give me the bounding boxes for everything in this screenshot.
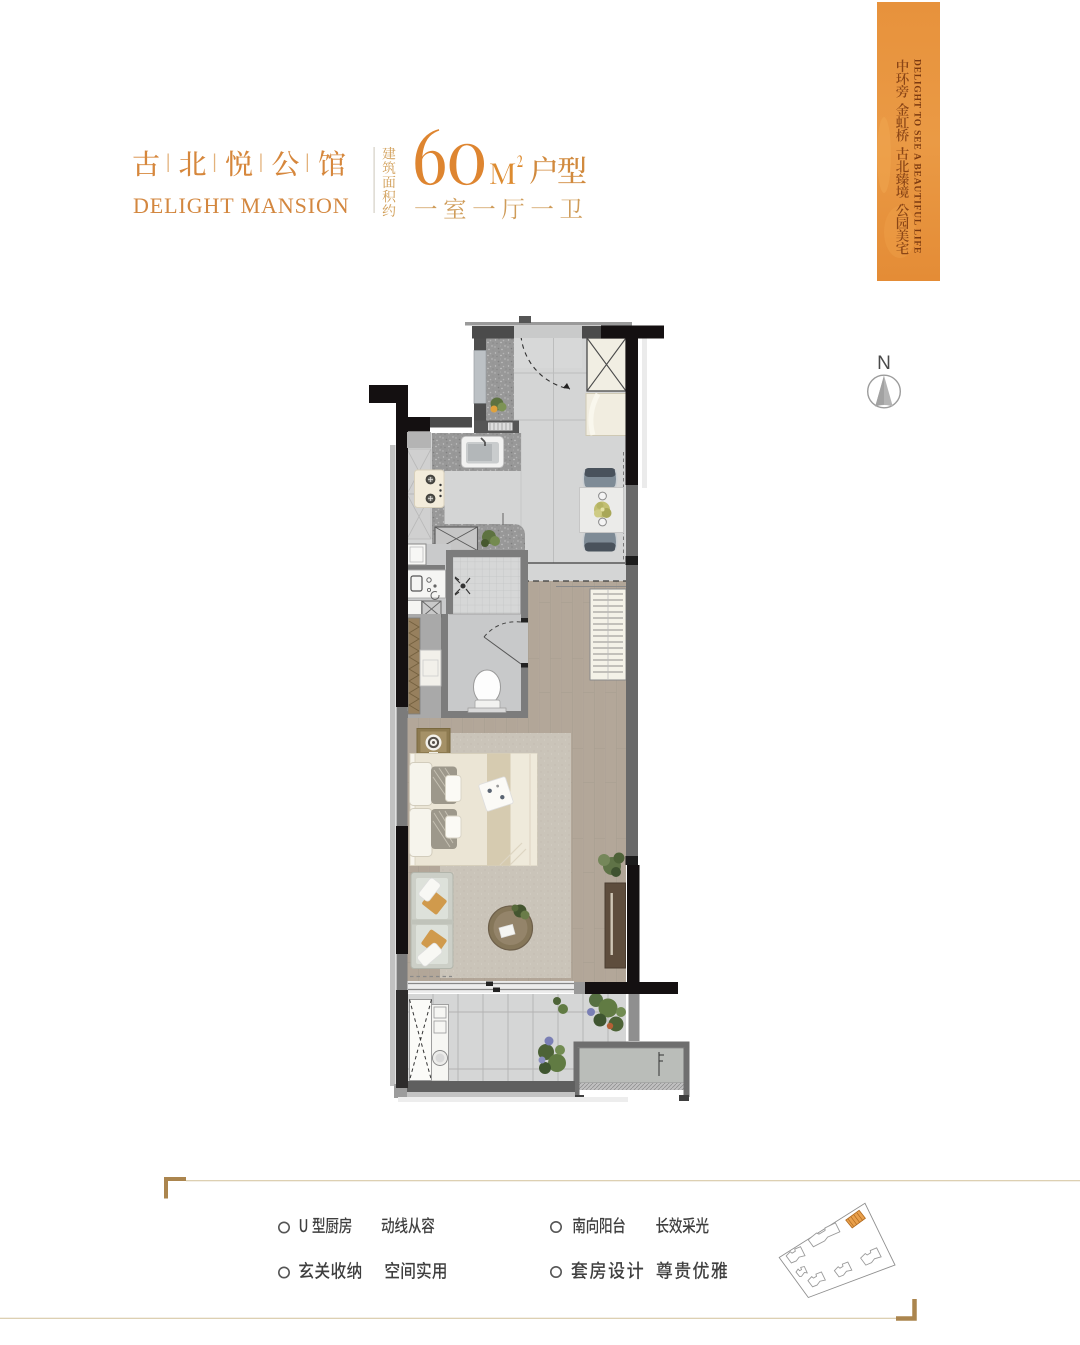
svg-text:DELIGHT TO SEE A BEAUTIFUL LIF: DELIGHT TO SEE A BEAUTIFUL LIFE (912, 59, 922, 254)
svg-text:DELIGHT MANSION: DELIGHT MANSION (133, 193, 350, 218)
svg-text:N: N (877, 353, 891, 374)
